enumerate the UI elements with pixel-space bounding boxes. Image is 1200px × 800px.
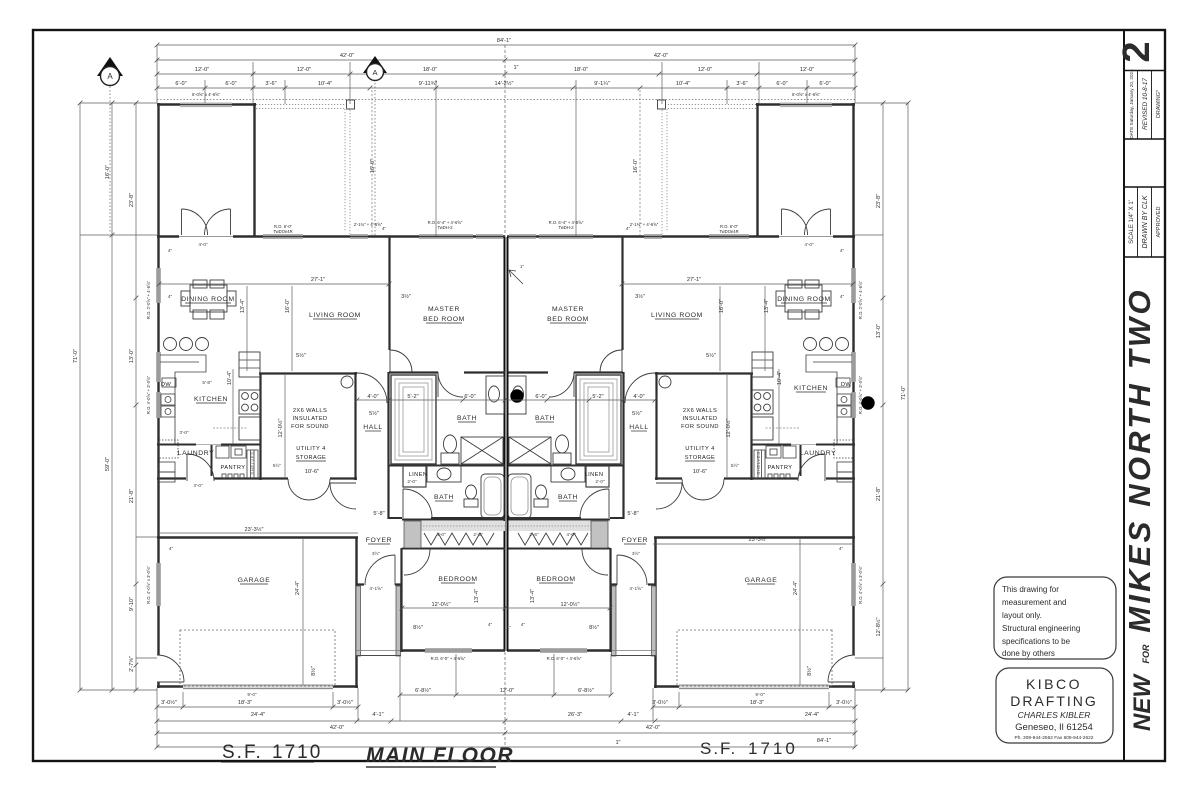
svg-text:3½": 3½" [401, 293, 411, 300]
svg-text:6'-0⅝" x 4'-6⅝": 6'-0⅝" x 4'-6⅝" [792, 92, 821, 97]
svg-text:2'-1¾" + 4'-6⅝": 2'-1¾" + 4'-6⅝" [630, 222, 659, 227]
svg-text:FOR: FOR [1141, 644, 1151, 663]
svg-text:PANTRY: PANTRY [768, 465, 793, 471]
svg-text:INSULATED: INSULATED [292, 416, 327, 422]
svg-text:12'-0½": 12'-0½" [725, 419, 732, 438]
svg-text:3½": 3½" [372, 550, 381, 556]
svg-text:5'-8": 5'-8" [627, 511, 638, 517]
svg-text:KIBCO: KIBCO [1026, 676, 1082, 692]
svg-text:4'-1⅝": 4'-1⅝" [629, 586, 643, 591]
svg-text:16'-0": 16'-0" [105, 165, 111, 179]
svg-text:MIKES NORTH TWO: MIKES NORTH TWO [1122, 287, 1157, 632]
svg-text:Geneseo, Il 61254: Geneseo, Il 61254 [1015, 722, 1093, 733]
svg-text:R.O. 6'-0" + 4'-6⅝": R.O. 6'-0" + 4'-6⅝" [431, 656, 466, 661]
svg-text:5'-2": 5'-2" [592, 394, 603, 400]
svg-text:LAUNDRY: LAUNDRY [800, 450, 837, 457]
svg-text:R.O. 4'-0⅝" + 3'-0⅝": R.O. 4'-0⅝" + 3'-0⅝" [858, 375, 863, 414]
svg-text:4'-0": 4'-0" [566, 532, 576, 537]
svg-text:18'-0": 18'-0" [423, 67, 437, 73]
svg-text:6'-0": 6'-0" [776, 81, 787, 87]
svg-text:4": 4" [521, 622, 526, 627]
svg-text:BATH: BATH [457, 415, 477, 422]
svg-text:5½": 5½" [731, 462, 740, 468]
svg-text:UTILITY 4: UTILITY 4 [296, 446, 325, 452]
svg-text:2X6 WALLS: 2X6 WALLS [293, 408, 327, 414]
svg-text:DINING ROOM: DINING ROOM [181, 296, 234, 303]
svg-text:5'-8": 5'-8" [202, 380, 212, 385]
svg-text:5½": 5½" [706, 352, 716, 359]
svg-text:LIVING ROOM: LIVING ROOM [309, 312, 361, 319]
svg-text:layout only.: layout only. [1002, 611, 1042, 620]
svg-text:6'-0": 6'-0" [535, 394, 546, 400]
svg-text:10'-4": 10'-4" [227, 371, 233, 385]
svg-text:12'-0": 12'-0" [800, 67, 814, 73]
svg-text:13'-4": 13'-4" [764, 299, 770, 313]
svg-text:LAUNDRY: LAUNDRY [178, 450, 215, 457]
svg-text:4": 4" [168, 294, 173, 299]
svg-text:specifications to be: specifications to be [1002, 637, 1071, 646]
svg-text:STORAGE: STORAGE [296, 455, 327, 461]
svg-text:3'-0½": 3'-0½" [337, 699, 353, 706]
svg-text:4'-1⅝": 4'-1⅝" [369, 586, 383, 591]
svg-text:6'-0": 6'-0" [819, 81, 830, 87]
svg-text:6'-0": 6'-0" [225, 81, 236, 87]
svg-text:59'-0": 59'-0" [105, 457, 111, 471]
svg-text:Ph. 309-944-2562 Fax 609-944-2: Ph. 309-944-2562 Fax 609-944-2622 [1015, 735, 1094, 741]
svg-text:8½": 8½" [806, 666, 813, 676]
svg-text:6'-8½": 6'-8½" [578, 687, 594, 694]
svg-text:9'-0": 9'-0" [247, 692, 257, 697]
svg-text:13'-4": 13'-4" [240, 299, 246, 313]
svg-text:4": 4" [840, 294, 845, 299]
svg-text:3'-6": 3'-6" [265, 81, 276, 87]
svg-text:UTILITY 4: UTILITY 4 [685, 446, 714, 452]
svg-text:4": 4" [840, 248, 845, 253]
svg-text:23'-3½": 23'-3½" [749, 536, 768, 543]
svg-text:Structural engineering: Structural engineering [1002, 624, 1080, 633]
svg-text:TwDOe4R: TwDOe4R [273, 229, 292, 234]
svg-text:BATH: BATH [535, 415, 555, 422]
svg-text:2: 2 [1116, 41, 1158, 62]
svg-text:9'-11¾": 9'-11¾" [419, 81, 438, 87]
svg-text:3½": 3½" [635, 293, 645, 300]
svg-text:8½": 8½" [413, 624, 423, 631]
svg-text:5½": 5½" [296, 352, 306, 359]
svg-text:12'-8½": 12'-8½" [875, 618, 882, 637]
svg-text:This drawing for: This drawing for [1002, 585, 1059, 594]
svg-text:4'-1": 4'-1" [372, 712, 383, 718]
svg-text:71'-0": 71'-0" [901, 386, 907, 400]
svg-text:FOYER: FOYER [622, 537, 648, 544]
svg-text:12'-0": 12'-0" [297, 67, 311, 73]
svg-text:4": 4" [169, 546, 174, 551]
svg-text:TwDOe4R: TwDOe4R [719, 229, 738, 234]
svg-text:12'-0": 12'-0" [195, 67, 209, 73]
svg-text:DRAWING*: DRAWING* [1156, 89, 1162, 118]
svg-text:10'-4": 10'-4" [318, 81, 332, 87]
svg-text:PANTRY: PANTRY [221, 465, 246, 471]
svg-text:A: A [372, 68, 377, 77]
svg-text:SHELVES: SHELVES [756, 451, 761, 474]
svg-text:84'-1": 84'-1" [497, 38, 511, 44]
svg-text:MAIN FLOOR: MAIN FLOOR [366, 744, 514, 767]
svg-text:GARAGE: GARAGE [238, 577, 271, 584]
svg-text:CHARLES KIBLER: CHARLES KIBLER [1018, 710, 1091, 720]
svg-text:23'-3½": 23'-3½" [245, 526, 264, 533]
svg-text:A: A [107, 72, 113, 81]
svg-text:R.O. 2'-0⅝" + 4'-6⅝": R.O. 2'-0⅝" + 4'-6⅝" [858, 280, 863, 319]
svg-text:1710: 1710 [748, 739, 798, 758]
svg-text:SHELVES: SHELVES [250, 451, 255, 474]
svg-text:NEW: NEW [1129, 673, 1156, 731]
svg-text:2'-6": 2'-6" [473, 532, 483, 537]
svg-text:4'-0": 4'-0" [804, 242, 814, 247]
svg-text:2'-0": 2'-0" [595, 479, 605, 484]
svg-text:16'-0": 16'-0" [285, 299, 291, 313]
svg-text:26'-3": 26'-3" [568, 712, 582, 718]
svg-text:10'-4": 10'-4" [777, 371, 783, 385]
svg-text:FOR SOUND: FOR SOUND [681, 424, 719, 430]
svg-text:8½": 8½" [589, 624, 599, 631]
svg-text:27'-1": 27'-1" [687, 277, 701, 283]
svg-text:9'-0": 9'-0" [755, 692, 765, 697]
svg-text:DW: DW [841, 382, 852, 388]
svg-text:measurement and: measurement and [1002, 598, 1066, 607]
svg-text:1710: 1710 [272, 742, 322, 763]
svg-text:9'-1¼": 9'-1¼" [594, 81, 610, 87]
svg-text:TwDH-2: TwDH-2 [437, 225, 453, 230]
svg-text:23'-8": 23'-8" [129, 193, 135, 207]
svg-text:10'-6": 10'-6" [305, 469, 319, 475]
svg-text:STORAGE: STORAGE [685, 455, 716, 461]
svg-text:12'-0½": 12'-0½" [277, 419, 284, 438]
svg-text:42'-0": 42'-0" [654, 53, 668, 59]
svg-text:DRAWN BY CLK: DRAWN BY CLK [1142, 195, 1149, 248]
svg-text:5½": 5½" [273, 462, 282, 468]
svg-text:1": 1" [513, 65, 518, 71]
svg-text:2X6 WALLS: 2X6 WALLS [683, 408, 717, 414]
svg-text:6'-0": 6'-0" [175, 81, 186, 87]
svg-text:12'-0½": 12'-0½" [432, 601, 451, 608]
svg-text:16'-0": 16'-0" [719, 299, 725, 313]
svg-text:4": 4" [168, 248, 173, 253]
svg-text:5'-2": 5'-2" [407, 394, 418, 400]
svg-text:DINING ROOM: DINING ROOM [777, 296, 830, 303]
svg-text:4'-0": 4'-0" [367, 394, 378, 400]
svg-text:LIVING ROOM: LIVING ROOM [651, 312, 703, 319]
svg-text:24'-4": 24'-4" [295, 581, 301, 595]
svg-text:18'-3": 18'-3" [750, 700, 764, 706]
svg-text:DW: DW [161, 382, 172, 388]
svg-text:SCALE 1/4" X 1': SCALE 1/4" X 1' [1129, 200, 1135, 244]
svg-text:9'-10": 9'-10" [129, 597, 135, 611]
svg-text:2'-1¾" + 4'-6⅝": 2'-1¾" + 4'-6⅝" [354, 222, 383, 227]
svg-text:27'-1": 27'-1" [311, 277, 325, 283]
svg-text:4": 4" [839, 546, 844, 551]
svg-text:42'-0": 42'-0" [340, 53, 354, 59]
svg-text:R.O. 4'-0⅝" x 3'-0⅝": R.O. 4'-0⅝" x 3'-0⅝" [146, 566, 151, 604]
svg-text:12'-0": 12'-0" [698, 67, 712, 73]
svg-text:INSULATED: INSULATED [682, 416, 717, 422]
svg-text:24'-4": 24'-4" [251, 712, 265, 718]
svg-text:3'-0½": 3'-0½" [161, 699, 177, 706]
svg-text:2'-6": 2'-6" [529, 532, 539, 537]
svg-text:5½": 5½" [632, 410, 642, 417]
svg-text:GARAGE: GARAGE [745, 577, 778, 584]
svg-text:S.F.: S.F. [700, 739, 737, 758]
svg-text:4": 4" [488, 622, 493, 627]
svg-text:42'-0": 42'-0" [330, 725, 344, 731]
svg-text:5½": 5½" [369, 410, 379, 417]
svg-text:HALL: HALL [629, 424, 648, 431]
svg-text:BEDROOM: BEDROOM [536, 576, 575, 583]
svg-text:6'-8½": 6'-8½" [415, 687, 431, 694]
svg-text:MASTER: MASTER [428, 306, 460, 313]
svg-text:10'-6": 10'-6" [693, 469, 707, 475]
svg-text:13'-4": 13'-4" [474, 589, 480, 603]
svg-text:4'-0": 4'-0" [633, 394, 644, 400]
svg-text:BED ROOM: BED ROOM [423, 316, 465, 323]
svg-text:3½": 3½" [632, 550, 641, 556]
svg-text:16'-0": 16'-0" [370, 159, 376, 173]
svg-text:6'-0": 6'-0" [464, 394, 475, 400]
svg-text:12'-0": 12'-0" [500, 688, 514, 694]
svg-text:2'-7⅝": 2'-7⅝" [129, 656, 135, 672]
svg-text:18'-0": 18'-0" [574, 67, 588, 73]
svg-text:4": 4" [382, 226, 387, 231]
svg-text:23'-8": 23'-8" [876, 194, 882, 208]
svg-text:R.O. 6'-0" + 4'-6⅝": R.O. 6'-0" + 4'-6⅝" [547, 656, 582, 661]
svg-text:REVISED 10-8-17: REVISED 10-8-17 [1142, 78, 1149, 130]
svg-text:1": 1" [520, 264, 525, 269]
svg-text:done by others: done by others [1002, 649, 1055, 658]
svg-text:DRAFTING: DRAFTING [1010, 693, 1098, 709]
svg-text:1": 1" [615, 740, 620, 746]
svg-text:4'-0": 4'-0" [198, 242, 208, 247]
svg-text:BED ROOM: BED ROOM [547, 316, 589, 323]
svg-text:6'-0⅝" x 4'-6⅝": 6'-0⅝" x 4'-6⅝" [192, 92, 221, 97]
svg-text:42'-0": 42'-0" [646, 725, 660, 731]
svg-text:3'-0": 3'-0" [193, 483, 203, 488]
svg-text:LINEN: LINEN [585, 472, 604, 478]
svg-text:R.O. 4'-0⅝" + 3'-0⅝": R.O. 4'-0⅝" + 3'-0⅝" [146, 375, 151, 414]
svg-text:MASTER: MASTER [552, 306, 584, 313]
svg-text:24'-4": 24'-4" [805, 712, 819, 718]
svg-text:14'-2½": 14'-2½" [495, 80, 514, 87]
svg-text:13'-0": 13'-0" [129, 349, 135, 363]
svg-text:KITCHEN: KITCHEN [194, 396, 228, 403]
svg-text:4'-1": 4'-1" [627, 712, 638, 718]
svg-text:HALL: HALL [363, 424, 382, 431]
svg-text:84'-1": 84'-1" [817, 738, 831, 744]
svg-text:DATE Saturday, January 20, 202: DATE Saturday, January 20, 2024 [1129, 69, 1134, 139]
svg-text:3'-0½": 3'-0½" [836, 699, 852, 706]
svg-text:71'-0": 71'-0" [73, 349, 79, 363]
svg-text:TwDH-2: TwDH-2 [558, 225, 574, 230]
svg-text:3'-0½": 3'-0½" [652, 699, 668, 706]
svg-text:12'-0½": 12'-0½" [561, 601, 580, 608]
svg-text:3'-6": 3'-6" [736, 81, 747, 87]
svg-text:R.O. 4'-0⅝" x 3'-0⅝": R.O. 4'-0⅝" x 3'-0⅝" [858, 566, 863, 604]
svg-text:BATH: BATH [558, 494, 578, 501]
svg-text:8½": 8½" [310, 666, 317, 676]
svg-text:3'-0": 3'-0" [179, 430, 189, 435]
svg-text:R.O. 2'-0⅝" + 4'-6⅝": R.O. 2'-0⅝" + 4'-6⅝" [146, 280, 151, 319]
svg-text:BATH: BATH [434, 494, 454, 501]
svg-text:1": 1" [507, 625, 512, 630]
svg-text:21'-8": 21'-8" [876, 487, 882, 501]
svg-text:21'-8": 21'-8" [129, 489, 135, 503]
svg-text:S.F.: S.F. [222, 742, 263, 763]
svg-text:LINEN: LINEN [409, 472, 428, 478]
svg-text:13'-0": 13'-0" [876, 324, 882, 338]
svg-text:4'-0": 4'-0" [436, 532, 446, 537]
svg-text:24'-4": 24'-4" [793, 581, 799, 595]
svg-text:5'-8": 5'-8" [373, 511, 384, 517]
svg-text:13'-4": 13'-4" [530, 589, 536, 603]
svg-text:18'-3": 18'-3" [238, 700, 252, 706]
svg-text:APPROVED: APPROVED [1156, 206, 1162, 237]
svg-text:BEDROOM: BEDROOM [438, 576, 477, 583]
svg-text:FOYER: FOYER [366, 537, 392, 544]
svg-text:10'-4": 10'-4" [676, 81, 690, 87]
svg-text:2'-0": 2'-0" [407, 479, 417, 484]
svg-text:FOR SOUND: FOR SOUND [291, 424, 329, 430]
svg-text:KITCHEN: KITCHEN [794, 385, 828, 392]
svg-text:16'-0": 16'-0" [633, 159, 639, 173]
